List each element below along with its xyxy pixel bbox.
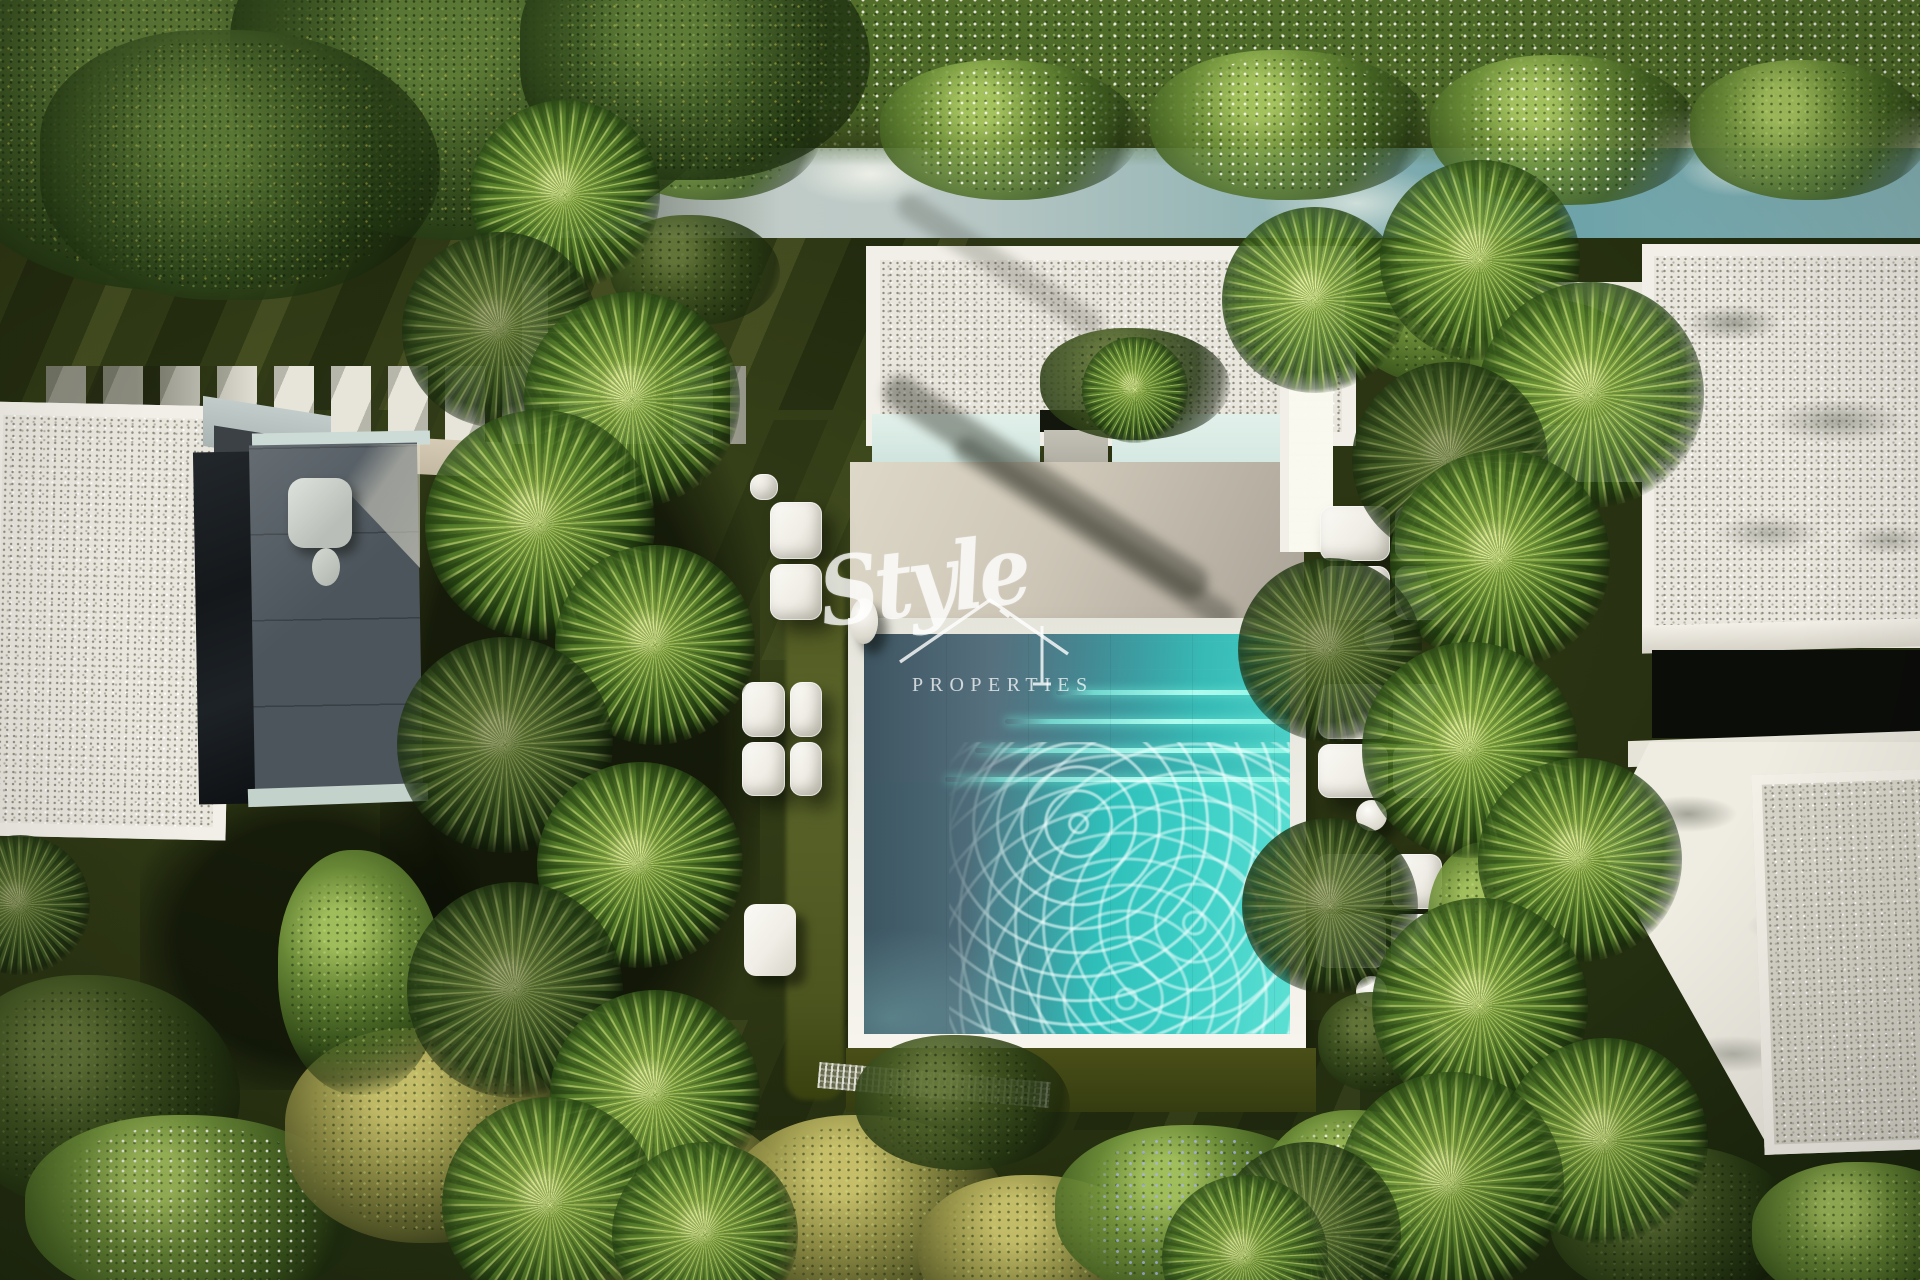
watermark-tagline: PROPERTIES [912,674,1094,697]
hedge-bush [1690,60,1920,200]
aerial-villa-photo: Style PROPERTIES [0,0,1920,1280]
bottom-bush [855,1035,1070,1170]
left-lounger-single [744,904,796,976]
watermark: Style PROPERTIES [800,548,1160,723]
outdoor-shower-unit [288,478,352,548]
right-villa-roof-leafshadow [1660,260,1920,610]
palm-tree [0,835,90,975]
palm-tree-small [1082,337,1188,443]
lounger-cushion [790,742,822,797]
left-villa-window-glass [193,452,257,805]
hedge-bush-flowering [1150,50,1430,200]
hedge-bush-flowering [880,60,1140,200]
lounger-cushion [742,682,785,737]
lounger-cushion [742,742,785,797]
right-terrace-gravel-panel [1751,769,1920,1155]
outdoor-shower-tray [312,548,340,586]
left-lounger-corner-cushion [750,474,778,500]
palm-tree [1222,207,1408,393]
right-villa-fascia [1642,618,1920,653]
right-villa-glass-band [1652,650,1920,738]
palm-tree [1390,450,1610,670]
